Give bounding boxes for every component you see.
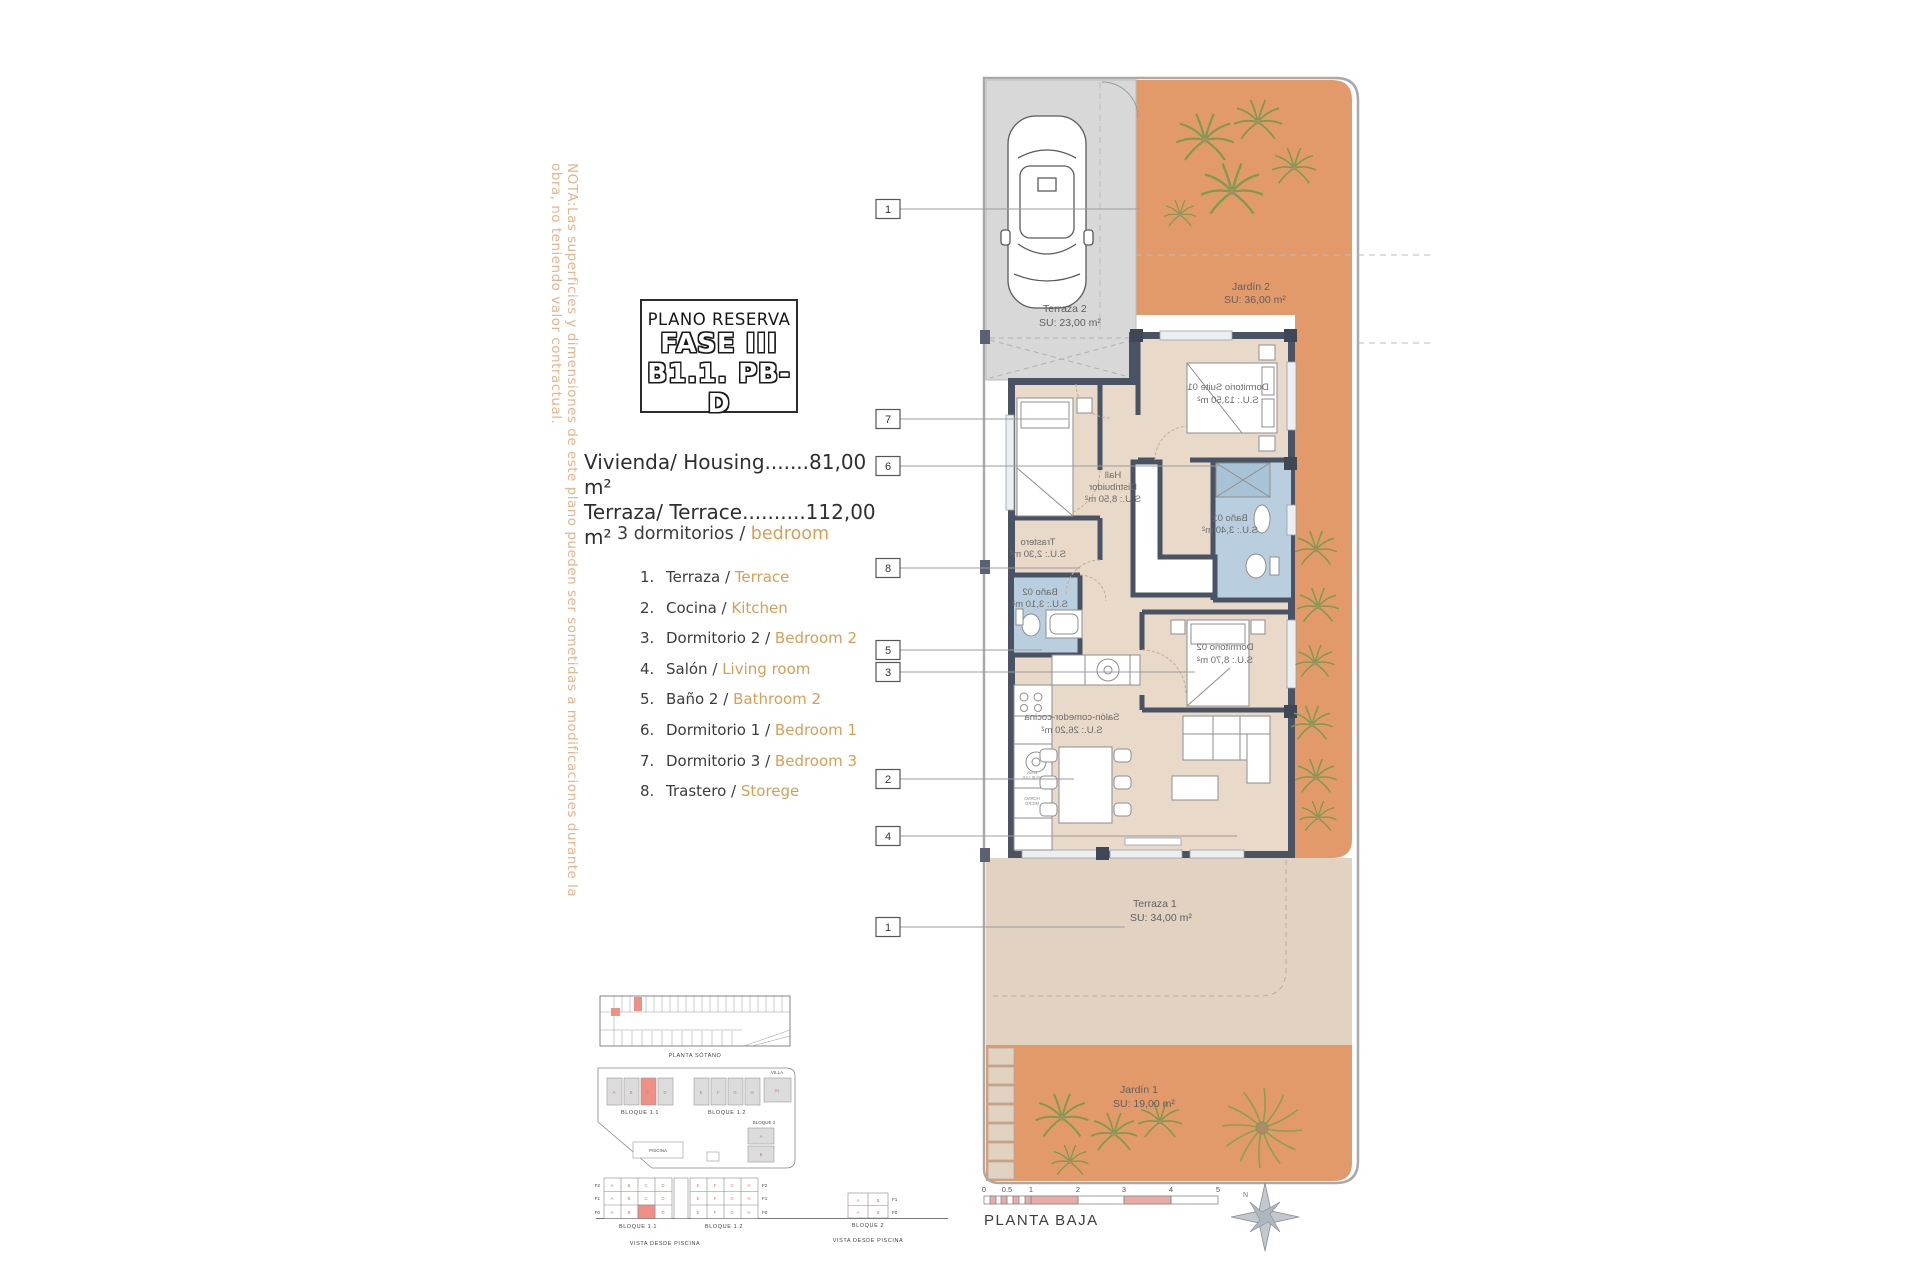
label-salon-su: S.U.: 26,20 m² bbox=[1041, 725, 1102, 736]
label-bano2: Baño 02 bbox=[1022, 587, 1057, 598]
svg-text:5: 5 bbox=[885, 645, 891, 657]
svg-text:0.5: 0.5 bbox=[1002, 1185, 1012, 1194]
label-hall2: Distribuidor bbox=[1089, 482, 1137, 493]
piscina-label: PISCINA bbox=[649, 1148, 667, 1153]
svg-text:F0: F0 bbox=[892, 1210, 898, 1215]
siteplan-overview: A B C D E F G H VILLA 01 BLOQUE 2 A B PI… bbox=[598, 1068, 795, 1168]
svg-text:8: 8 bbox=[885, 563, 891, 575]
label-hall: Hall bbox=[1105, 470, 1121, 481]
svg-text:0: 0 bbox=[982, 1185, 986, 1194]
svg-text:5: 5 bbox=[1216, 1185, 1220, 1194]
svg-text:E: E bbox=[700, 1090, 703, 1095]
car-icon bbox=[1001, 116, 1093, 308]
svg-text:B: B bbox=[628, 1196, 631, 1201]
svg-text:G: G bbox=[730, 1210, 733, 1215]
svg-text:A: A bbox=[857, 1210, 860, 1215]
svg-text:A: A bbox=[611, 1210, 614, 1215]
svg-text:1: 1 bbox=[1029, 1185, 1033, 1194]
svg-text:D: D bbox=[663, 1090, 666, 1095]
label-dorm2: Dormitorio 02 bbox=[1196, 642, 1253, 653]
label-suite-su: S.U.: 13,50 m² bbox=[1197, 395, 1258, 406]
label-terraza1: Terraza 1 bbox=[1133, 898, 1177, 910]
svg-text:H: H bbox=[747, 1196, 750, 1201]
highlight-unit-cell bbox=[638, 1205, 655, 1219]
vista-caption-right: VISTA DESDE PISCINA bbox=[833, 1238, 904, 1244]
label-terraza1-su: SU: 34,00 m² bbox=[1130, 912, 1192, 924]
svg-text:C: C bbox=[644, 1196, 647, 1201]
siteplan-sotano: PLANTA SÓTANO bbox=[600, 996, 790, 1059]
svg-text:F0: F0 bbox=[762, 1210, 768, 1215]
label-terraza2: Terraza 2 bbox=[1043, 303, 1087, 315]
svg-text:F1: F1 bbox=[595, 1196, 601, 1201]
bloque12-label: BLOQUE 1.2 bbox=[708, 1110, 746, 1116]
svg-text:A: A bbox=[611, 1196, 614, 1201]
label-bano1-su: S.U.: 3,40 m² bbox=[1202, 525, 1258, 536]
svg-text:A: A bbox=[611, 1183, 614, 1188]
bloque2-label: BLOQUE 2 bbox=[753, 1120, 776, 1125]
svg-text:BLOQUE 1.2: BLOQUE 1.2 bbox=[705, 1224, 743, 1230]
north-label: N bbox=[1243, 1192, 1248, 1199]
svg-text:4: 4 bbox=[885, 831, 891, 843]
svg-text:D: D bbox=[661, 1196, 664, 1201]
svg-text:F: F bbox=[714, 1183, 717, 1188]
svg-text:B: B bbox=[877, 1210, 880, 1215]
sotano-label: PLANTA SÓTANO bbox=[669, 1052, 722, 1059]
svg-text:F1: F1 bbox=[762, 1196, 768, 1201]
svg-text:D: D bbox=[661, 1183, 664, 1188]
svg-text:2: 2 bbox=[885, 774, 891, 786]
label-trastero-su: S.U.: 2,30 m² bbox=[1010, 549, 1066, 560]
svg-text:B: B bbox=[630, 1090, 633, 1095]
label-bano2-su: S.U.: 3,10 m² bbox=[1012, 599, 1068, 610]
apartment: LAVA VAJILLAS HORNO MICRO Dormitorio Sui… bbox=[1006, 329, 1297, 860]
svg-text:E: E bbox=[697, 1210, 700, 1215]
highlight-parking-cell2 bbox=[611, 1008, 620, 1016]
svg-text:B: B bbox=[628, 1210, 631, 1215]
label-jardin2-su: SU: 36,00 m² bbox=[1224, 294, 1286, 306]
svg-text:6: 6 bbox=[885, 461, 891, 473]
svg-text:E: E bbox=[697, 1183, 700, 1188]
svg-text:D: D bbox=[661, 1210, 664, 1215]
svg-text:2: 2 bbox=[1076, 1185, 1080, 1194]
svg-text:A: A bbox=[760, 1134, 763, 1139]
svg-text:F1: F1 bbox=[892, 1197, 898, 1202]
scale-bar: 0 0.5 1 2 3 4 5 PLANTA BAJA bbox=[982, 1185, 1220, 1229]
svg-text:B: B bbox=[628, 1183, 631, 1188]
label-jardin2: Jardín 2 bbox=[1232, 281, 1270, 293]
svg-text:1: 1 bbox=[885, 204, 891, 216]
drawing-title: PLANTA BAJA bbox=[984, 1212, 1099, 1229]
svg-text:7: 7 bbox=[885, 414, 891, 426]
svg-text:A: A bbox=[857, 1198, 860, 1203]
svg-text:F0: F0 bbox=[595, 1210, 601, 1215]
bloque11-label: BLOQUE 1.1 bbox=[621, 1110, 659, 1116]
svg-text:BLOQUE 2: BLOQUE 2 bbox=[852, 1223, 884, 1229]
label-hall-su: S.U.: 8,50 m² bbox=[1085, 494, 1141, 505]
label-bano1: Baño 01 bbox=[1212, 513, 1247, 524]
svg-text:F: F bbox=[714, 1210, 717, 1215]
svg-text:G: G bbox=[730, 1196, 733, 1201]
label-jardin1: Jardín 1 bbox=[1120, 1084, 1158, 1096]
svg-text:B: B bbox=[877, 1198, 880, 1203]
svg-text:H: H bbox=[747, 1210, 750, 1215]
svg-text:F: F bbox=[717, 1090, 720, 1095]
svg-text:A: A bbox=[613, 1090, 616, 1095]
vista-caption-left: VISTA DESDE PISCINA bbox=[630, 1241, 701, 1247]
label-terraza2-su: SU: 23,00 m² bbox=[1039, 317, 1101, 329]
svg-text:4: 4 bbox=[1169, 1185, 1173, 1194]
svg-text:C: C bbox=[644, 1183, 647, 1188]
svg-text:1: 1 bbox=[885, 922, 891, 934]
label-salon: Salón-comedor-cocina bbox=[1024, 712, 1120, 723]
svg-text:01: 01 bbox=[775, 1088, 780, 1093]
kitchen-label: MICRO bbox=[1024, 801, 1039, 806]
svg-text:3: 3 bbox=[885, 667, 891, 679]
scale-ticks: 0 0.5 1 2 3 4 5 bbox=[982, 1185, 1220, 1194]
callout-numbers: 1 7 6 8 5 3 2 4 1 bbox=[885, 204, 891, 934]
svg-text:G: G bbox=[730, 1183, 733, 1188]
elevation-view: ABCD ABCD ABD EFGH EFGH EFGH AB AB F2 F1… bbox=[595, 1178, 948, 1247]
terraza1-area bbox=[986, 858, 1352, 1045]
svg-text:BLOQUE 1.1: BLOQUE 1.1 bbox=[619, 1224, 657, 1230]
svg-text:H: H bbox=[750, 1090, 753, 1095]
compass-icon: N bbox=[1231, 1183, 1299, 1251]
svg-text:F2: F2 bbox=[762, 1183, 768, 1188]
label-dorm2-su: S.U.: 8,70 m² bbox=[1197, 655, 1253, 666]
garden-steps bbox=[988, 1048, 1014, 1179]
label-suite: Dormitorio Suite 01 bbox=[1187, 382, 1268, 393]
label-trastero: Trastero bbox=[1020, 537, 1055, 548]
floor-plan-canvas: LAVA VAJILLAS HORNO MICRO Dormitorio Sui… bbox=[0, 0, 1920, 1280]
svg-text:G: G bbox=[733, 1090, 736, 1095]
highlight-parking-cell bbox=[634, 997, 642, 1011]
svg-text:B: B bbox=[760, 1152, 763, 1157]
svg-text:E: E bbox=[697, 1196, 700, 1201]
svg-text:C: C bbox=[646, 1090, 649, 1095]
svg-text:3: 3 bbox=[1122, 1185, 1126, 1194]
villa-label: VILLA bbox=[771, 1070, 783, 1075]
svg-text:H: H bbox=[747, 1183, 750, 1188]
svg-text:F: F bbox=[714, 1196, 717, 1201]
scale-segments bbox=[984, 1196, 1218, 1204]
svg-text:F2: F2 bbox=[595, 1183, 601, 1188]
label-jardin1-su: SU: 19,00 m² bbox=[1113, 1098, 1175, 1110]
